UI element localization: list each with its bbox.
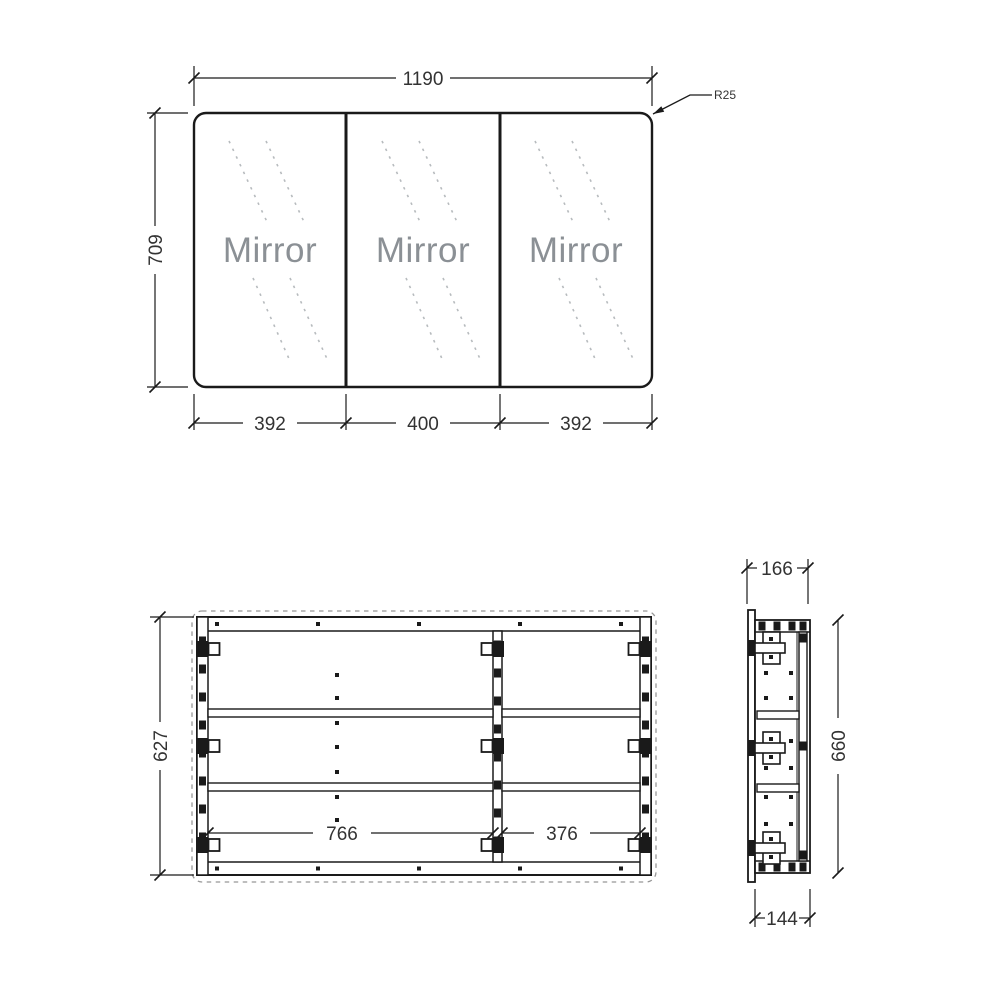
dim-carcass-depth-label: 144 <box>766 909 798 930</box>
front-view: Mirror Mirror Mirror 1190 709 <box>146 66 736 435</box>
dim-right-compartment-label: 376 <box>546 824 578 845</box>
dim-door-left-label: 392 <box>254 414 286 435</box>
shelf <box>757 711 799 719</box>
dim-door-right-label: 392 <box>560 414 592 435</box>
hinge <box>197 837 220 853</box>
hinge <box>197 738 220 754</box>
dim-door-center-label: 400 <box>407 414 439 435</box>
carcass-view: 627 766 376 <box>150 611 656 882</box>
hinge <box>629 837 652 853</box>
radius-callout-label: R25 <box>714 88 736 102</box>
side-view: 166 660 144 <box>742 559 851 930</box>
hinge <box>629 641 652 657</box>
dim-overall-depth-label: 166 <box>761 559 793 580</box>
shelf <box>502 783 640 791</box>
hinge <box>197 641 220 657</box>
arrow-icon <box>653 106 664 114</box>
back-panel <box>799 632 807 861</box>
dim-internal-height-label: 627 <box>151 730 172 762</box>
dim-side-height-label: 660 <box>829 730 850 762</box>
dim-overall-height-label: 709 <box>146 234 167 266</box>
hinge <box>482 641 505 657</box>
shelf <box>502 709 640 717</box>
mirror-label-center: Mirror <box>376 231 470 270</box>
mirror-label-left: Mirror <box>223 231 317 270</box>
shelf <box>208 709 493 717</box>
dim-overall-width-label: 1190 <box>403 69 444 90</box>
technical-drawing-page: Mirror Mirror Mirror 1190 709 <box>0 0 1000 1000</box>
technical-drawing: Mirror Mirror Mirror 1190 709 <box>0 0 1000 1000</box>
mirror-label-right: Mirror <box>529 231 623 270</box>
hinge <box>482 738 505 754</box>
shelf <box>757 784 799 792</box>
shelf <box>208 783 493 791</box>
carcass-outline <box>197 617 651 875</box>
hinge <box>629 738 652 754</box>
radius-callout: R25 <box>653 88 736 114</box>
dim-left-compartment-label: 766 <box>326 824 358 845</box>
hinge <box>482 837 505 853</box>
